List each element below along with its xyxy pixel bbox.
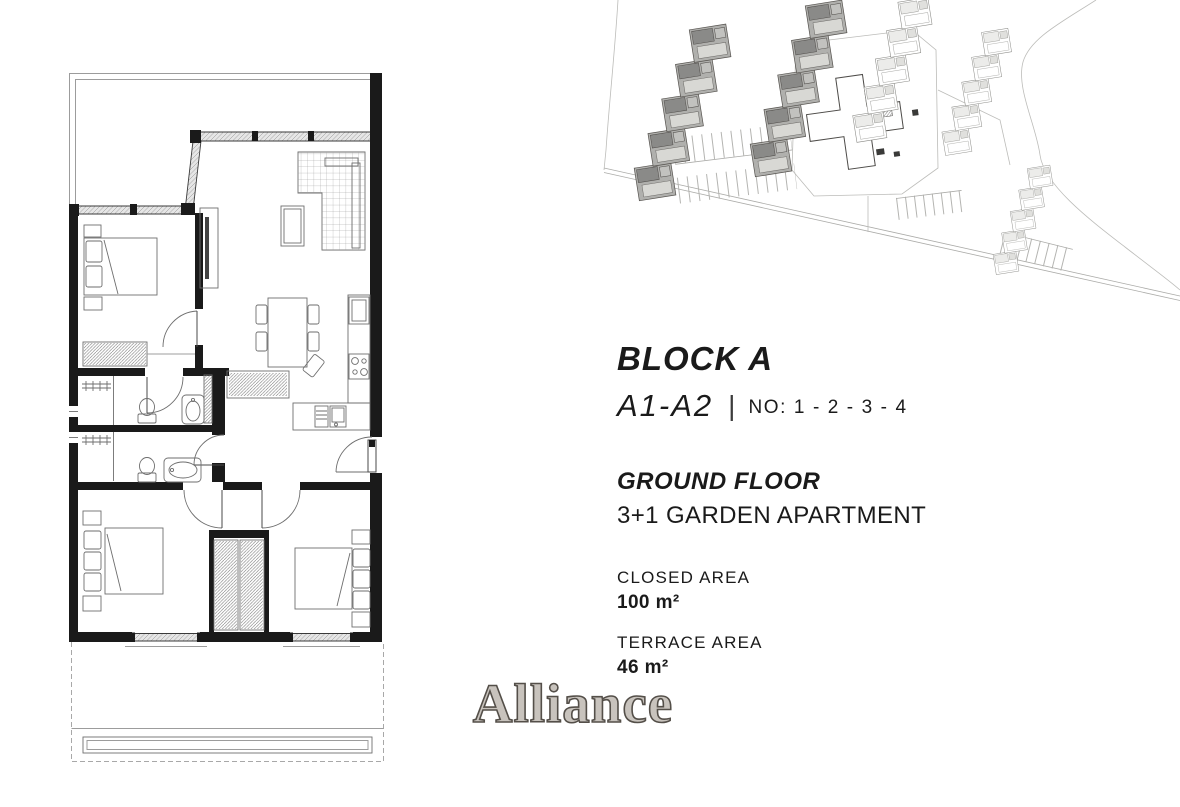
- flyer-page: BLOCK A A1-A2 | NO: 1 - 2 - 3 - 4 GROUND…: [0, 0, 1180, 807]
- floor-label: GROUND FLOOR: [617, 468, 926, 496]
- terrace-area-label: TERRACE AREA: [617, 633, 926, 653]
- closed-area-block: CLOSED AREA 100 m²: [617, 568, 926, 614]
- site-block-a-highlighted: [614, 24, 751, 201]
- unit-numbers: NO: 1 - 2 - 3 - 4: [748, 393, 907, 419]
- bedroom-3: [295, 530, 370, 627]
- terrace-garden: [72, 642, 384, 762]
- kitchen: [293, 295, 370, 430]
- info-panel: BLOCK A A1-A2 | NO: 1 - 2 - 3 - 4 GROUND…: [617, 340, 926, 679]
- unit-row: A1-A2 | NO: 1 - 2 - 3 - 4: [617, 388, 926, 424]
- living-room: [200, 152, 365, 378]
- bathroom-1: [82, 376, 204, 425]
- wardrobes: [214, 540, 264, 630]
- unit-range: A1-A2: [617, 388, 713, 424]
- closed-area-value: 100 m²: [617, 592, 926, 614]
- floor-plan: [60, 60, 400, 775]
- apartment-type: 3+1 GARDEN APARTMENT: [617, 502, 926, 530]
- brand-logo: Alliance: [458, 672, 688, 735]
- separator-bar: |: [728, 390, 735, 422]
- site-plan: [595, 0, 1180, 310]
- bedroom-1: [83, 225, 195, 366]
- closed-area-label: CLOSED AREA: [617, 568, 926, 588]
- block-title: BLOCK A: [617, 340, 926, 378]
- bedroom-2: [83, 511, 163, 611]
- bathroom-2: [82, 432, 201, 482]
- doors: [147, 311, 376, 528]
